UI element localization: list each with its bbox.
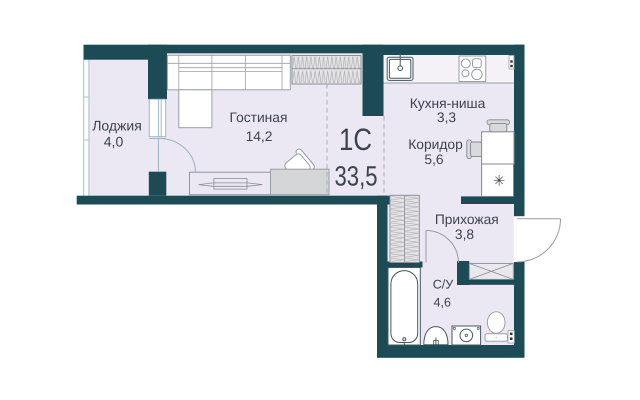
svg-text:4,0: 4,0: [104, 134, 124, 150]
svg-text:4,6: 4,6: [434, 296, 452, 310]
svg-text:Гостиная: Гостиная: [230, 110, 288, 125]
svg-text:1С: 1С: [339, 122, 372, 157]
svg-text:3,8: 3,8: [455, 227, 475, 242]
svg-text:Лоджия: Лоджия: [92, 118, 142, 134]
svg-text:5,6: 5,6: [424, 152, 444, 167]
svg-text:Коридор: Коридор: [408, 137, 463, 152]
svg-text:33,5: 33,5: [335, 161, 378, 192]
svg-text:С/У: С/У: [433, 278, 455, 292]
svg-text:Прихожая: Прихожая: [435, 212, 499, 227]
svg-text:14,2: 14,2: [246, 129, 273, 144]
svg-text:Кухня-ниша: Кухня-ниша: [410, 96, 486, 111]
svg-text:3,3: 3,3: [437, 110, 457, 125]
